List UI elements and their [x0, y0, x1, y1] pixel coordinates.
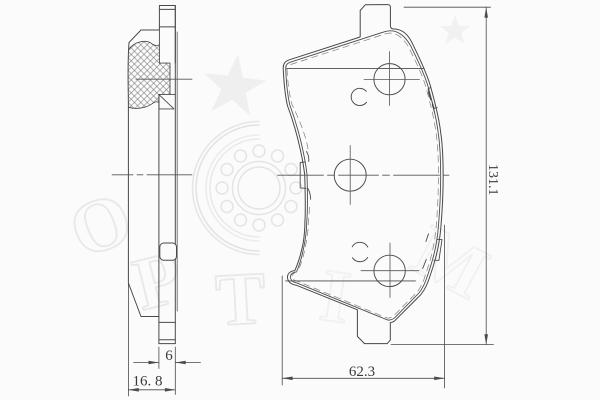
svg-text:16. 8: 16. 8 [133, 373, 163, 389]
svg-text:131.1: 131.1 [485, 164, 500, 196]
svg-text:T: T [214, 257, 268, 343]
svg-text:62.3: 62.3 [349, 364, 375, 380]
svg-text:6: 6 [165, 348, 173, 364]
